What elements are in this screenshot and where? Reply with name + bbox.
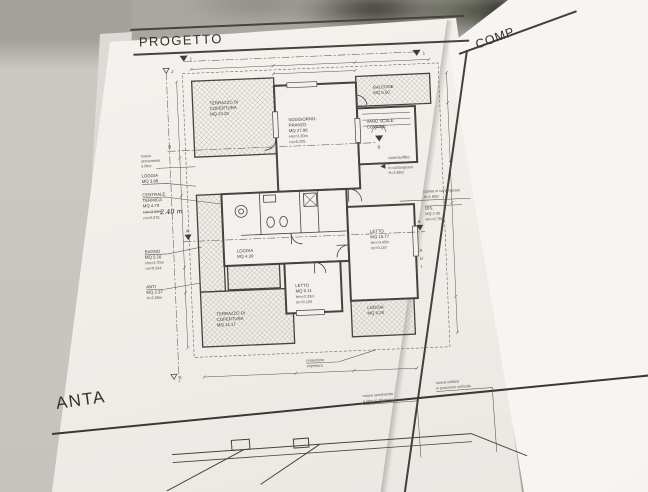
handwritten-correction: 2.40 m xyxy=(159,207,183,216)
annotation: Hm=2.70m xyxy=(145,261,164,266)
room-label: MQ 2.40 xyxy=(425,212,440,217)
annotation: serramento xyxy=(141,159,160,164)
section-marker-label: 2 xyxy=(171,69,174,74)
room-label: Hm=2.70m xyxy=(426,217,445,222)
annotation: H=2.60m xyxy=(147,296,163,301)
room-label: Hm=3.33m xyxy=(296,294,315,299)
section-marker-label: B xyxy=(168,144,171,149)
section-marker-label: 1 xyxy=(190,56,193,61)
sheet-border-line xyxy=(130,15,464,30)
room-label: MQ 14.17 xyxy=(217,322,237,328)
sheet-progetto-content: PROGETTO xyxy=(126,5,491,431)
section-marker-triangle-icon xyxy=(180,55,188,61)
annotation: piano xyxy=(388,161,397,165)
annotation: in cartongesso xyxy=(388,165,413,170)
room-label: MQ 9.11 xyxy=(295,288,312,294)
section-marker-triangle-icon xyxy=(413,50,421,56)
room-label: rm=0.187 xyxy=(371,246,387,251)
annotation: rm=0.244 xyxy=(145,266,161,271)
annotation: H=2.80m xyxy=(389,170,405,175)
annotation: MQ 4.79 xyxy=(143,203,160,209)
annotation: a libro xyxy=(141,164,152,168)
room-label: COMUNE xyxy=(367,124,386,130)
progetto-title: PROGETTO xyxy=(139,31,223,50)
annotation: parete in cartongesso xyxy=(423,188,460,194)
annotation: H=2.80m xyxy=(424,195,440,200)
section-marker-label: B xyxy=(377,144,380,149)
photo-of-floor-plan: COMP PROGETTO xyxy=(0,0,648,492)
vertical-letter: U xyxy=(420,256,423,261)
room-label: MQ 5.50 xyxy=(373,89,390,95)
annotation: proiezione xyxy=(306,358,324,363)
pointer-triangle-icon xyxy=(380,164,385,169)
section-marker-label: A xyxy=(186,229,189,234)
section-marker-triangle-icon xyxy=(171,374,177,379)
room-label: MQ 4.39 xyxy=(237,253,254,259)
room-label: Hm=3.45m xyxy=(370,240,389,245)
section-marker-triangle-icon xyxy=(185,234,192,240)
room-label: rm=0.205 xyxy=(289,140,305,145)
vertical-letter: A xyxy=(419,248,422,253)
annotation: rm=0.676 xyxy=(143,216,159,221)
room-label: Hm=3.30m xyxy=(289,134,308,139)
annotation: nuovo xyxy=(141,154,152,158)
room-label: MQ 9.28 xyxy=(367,310,384,316)
room-label: MQ 15.77 xyxy=(370,234,390,240)
annotation: copertura xyxy=(307,364,324,369)
room-label: MQ 20.28 xyxy=(210,111,230,117)
section-marker-triangle-icon xyxy=(163,68,169,73)
lower-sheet-annotations: nuovo serramento a libro in alluminio nu… xyxy=(362,377,497,461)
section-marker-label: A xyxy=(418,219,421,224)
section-marker-label: 1 xyxy=(423,50,426,55)
struck-printed-height: Hm=2.64m xyxy=(143,210,162,215)
annotation: MQ 3.98 xyxy=(142,178,159,184)
vertical-letter: I xyxy=(421,264,422,269)
room-label: MQ 27.96 xyxy=(289,127,309,133)
floor-plan: 1 1 2 2 A A B B xyxy=(136,44,480,406)
room-label: rm=0.193 xyxy=(296,300,312,305)
section-marker-label: 2 xyxy=(179,375,182,380)
